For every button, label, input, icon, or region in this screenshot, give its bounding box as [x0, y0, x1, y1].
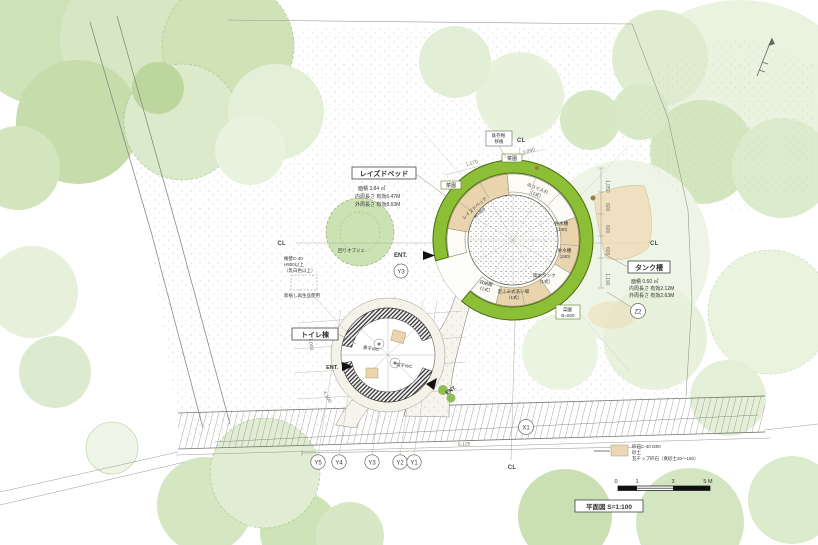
- dim-1190: 1,190: [604, 273, 610, 286]
- axis-y4: Y4: [335, 461, 343, 467]
- axis-z2: Z2: [634, 310, 642, 316]
- dim-7000: 7,000: [307, 338, 314, 351]
- site-plan-svg: 菜園 菜園 菜園 B=600 レイズドベッド H=450 のうぐ入れ （1式） …: [0, 0, 818, 545]
- plan-title: 平面図 S=1:100: [575, 500, 643, 512]
- dim-600a: 600: [604, 203, 610, 212]
- axis-y3: Y3: [368, 461, 376, 467]
- saien-2-text: 菜園: [507, 155, 517, 162]
- legend-line1: 砕石C-40 t200: [632, 443, 661, 450]
- legend-line2: 砂土: [632, 449, 641, 456]
- axis-y5: Y5: [314, 461, 322, 467]
- tree: [560, 90, 620, 150]
- planting-bed-south: [588, 301, 636, 329]
- raised-bed-note-title: レイズドベッド: [360, 169, 409, 178]
- toilet-fixture-bed: [366, 368, 378, 378]
- retaining-note-1: 擁壁C-40: [284, 255, 303, 262]
- tank-note-inner: 内周長さ 有効2.12M: [629, 285, 674, 292]
- retaining-note-2: H500以上: [284, 261, 304, 267]
- tree: [86, 422, 138, 474]
- existing-tree-trunk: [535, 166, 539, 170]
- ent-main-text: ENT.: [394, 253, 407, 259]
- saien-label-2: 菜園: [502, 154, 522, 162]
- tank-note-title: タンク槽: [635, 263, 663, 272]
- tree: [708, 250, 818, 374]
- ent-toilet-west-text: ENT.: [326, 365, 338, 371]
- existing-tree-trunk: [591, 196, 596, 201]
- raised-bed-note-outer: 外周長さ 有効8.63M: [355, 201, 400, 208]
- scale-5: 5 M: [703, 479, 713, 485]
- raised-bed-note-area: 面積 3.84 ㎡: [358, 185, 386, 192]
- tree: [636, 468, 744, 545]
- tree: [419, 26, 491, 98]
- axis-y3-mid: Y3: [397, 270, 405, 276]
- tree: [215, 115, 285, 185]
- object-note: 回りオブジェ: [338, 247, 365, 254]
- toilet-note-title: トイレ棟: [301, 330, 330, 339]
- tree: [132, 62, 184, 114]
- cl-east: CL: [650, 241, 659, 247]
- legend-swatch: [611, 445, 628, 456]
- tree: [326, 198, 394, 266]
- scale-3: 3: [671, 479, 674, 485]
- cl-west: CL: [277, 241, 286, 247]
- saien-1-text: 菜園: [446, 182, 456, 189]
- site-plan-page: 菜園 菜園 菜園 B=600 レイズドベッド H=450 のうぐ入れ （1式） …: [0, 0, 818, 545]
- axis-y2: Y2: [396, 461, 404, 467]
- tree: [748, 456, 818, 544]
- scale-0: 0: [614, 479, 617, 485]
- plan-title-text: 平面図 S=1:100: [586, 502, 632, 511]
- dim-600b: 600: [604, 225, 610, 234]
- tree: [0, 246, 78, 338]
- saien-label-1: 菜園: [441, 181, 461, 189]
- cl-south: CL: [508, 465, 517, 471]
- tree: [522, 314, 598, 390]
- tree: [19, 336, 91, 408]
- dim-5125: 5,125: [458, 442, 471, 448]
- saien-label-3: 菜園 B=600: [556, 305, 580, 319]
- legend: 砕石C-40 t200 砂土 瓦チップ砕石（真砂土20〜150）: [594, 443, 699, 462]
- tank-note-area: 面積 0.60 ㎡: [631, 278, 659, 285]
- dim-600c: 600: [604, 247, 610, 256]
- legend-line3: 瓦チップ砕石（真砂土20〜150）: [632, 455, 699, 462]
- retaining-note-3: （乳白色以上）: [284, 267, 316, 274]
- tank-note-outer: 外周長さ 有効2.63M: [629, 292, 674, 299]
- scale-1: 1: [635, 479, 638, 485]
- axis-x1: X1: [522, 426, 530, 432]
- axis-y1: Y1: [410, 461, 418, 467]
- retaining-note-4: 新植し再生品使用: [284, 292, 320, 299]
- cl-north: CL: [517, 138, 526, 144]
- toilet-building: 男子WC 女子WC: [331, 298, 445, 412]
- raised-bed-note-inner: 内周長さ 有効6.47M: [355, 193, 400, 200]
- dim-1050: 1,050: [604, 180, 610, 193]
